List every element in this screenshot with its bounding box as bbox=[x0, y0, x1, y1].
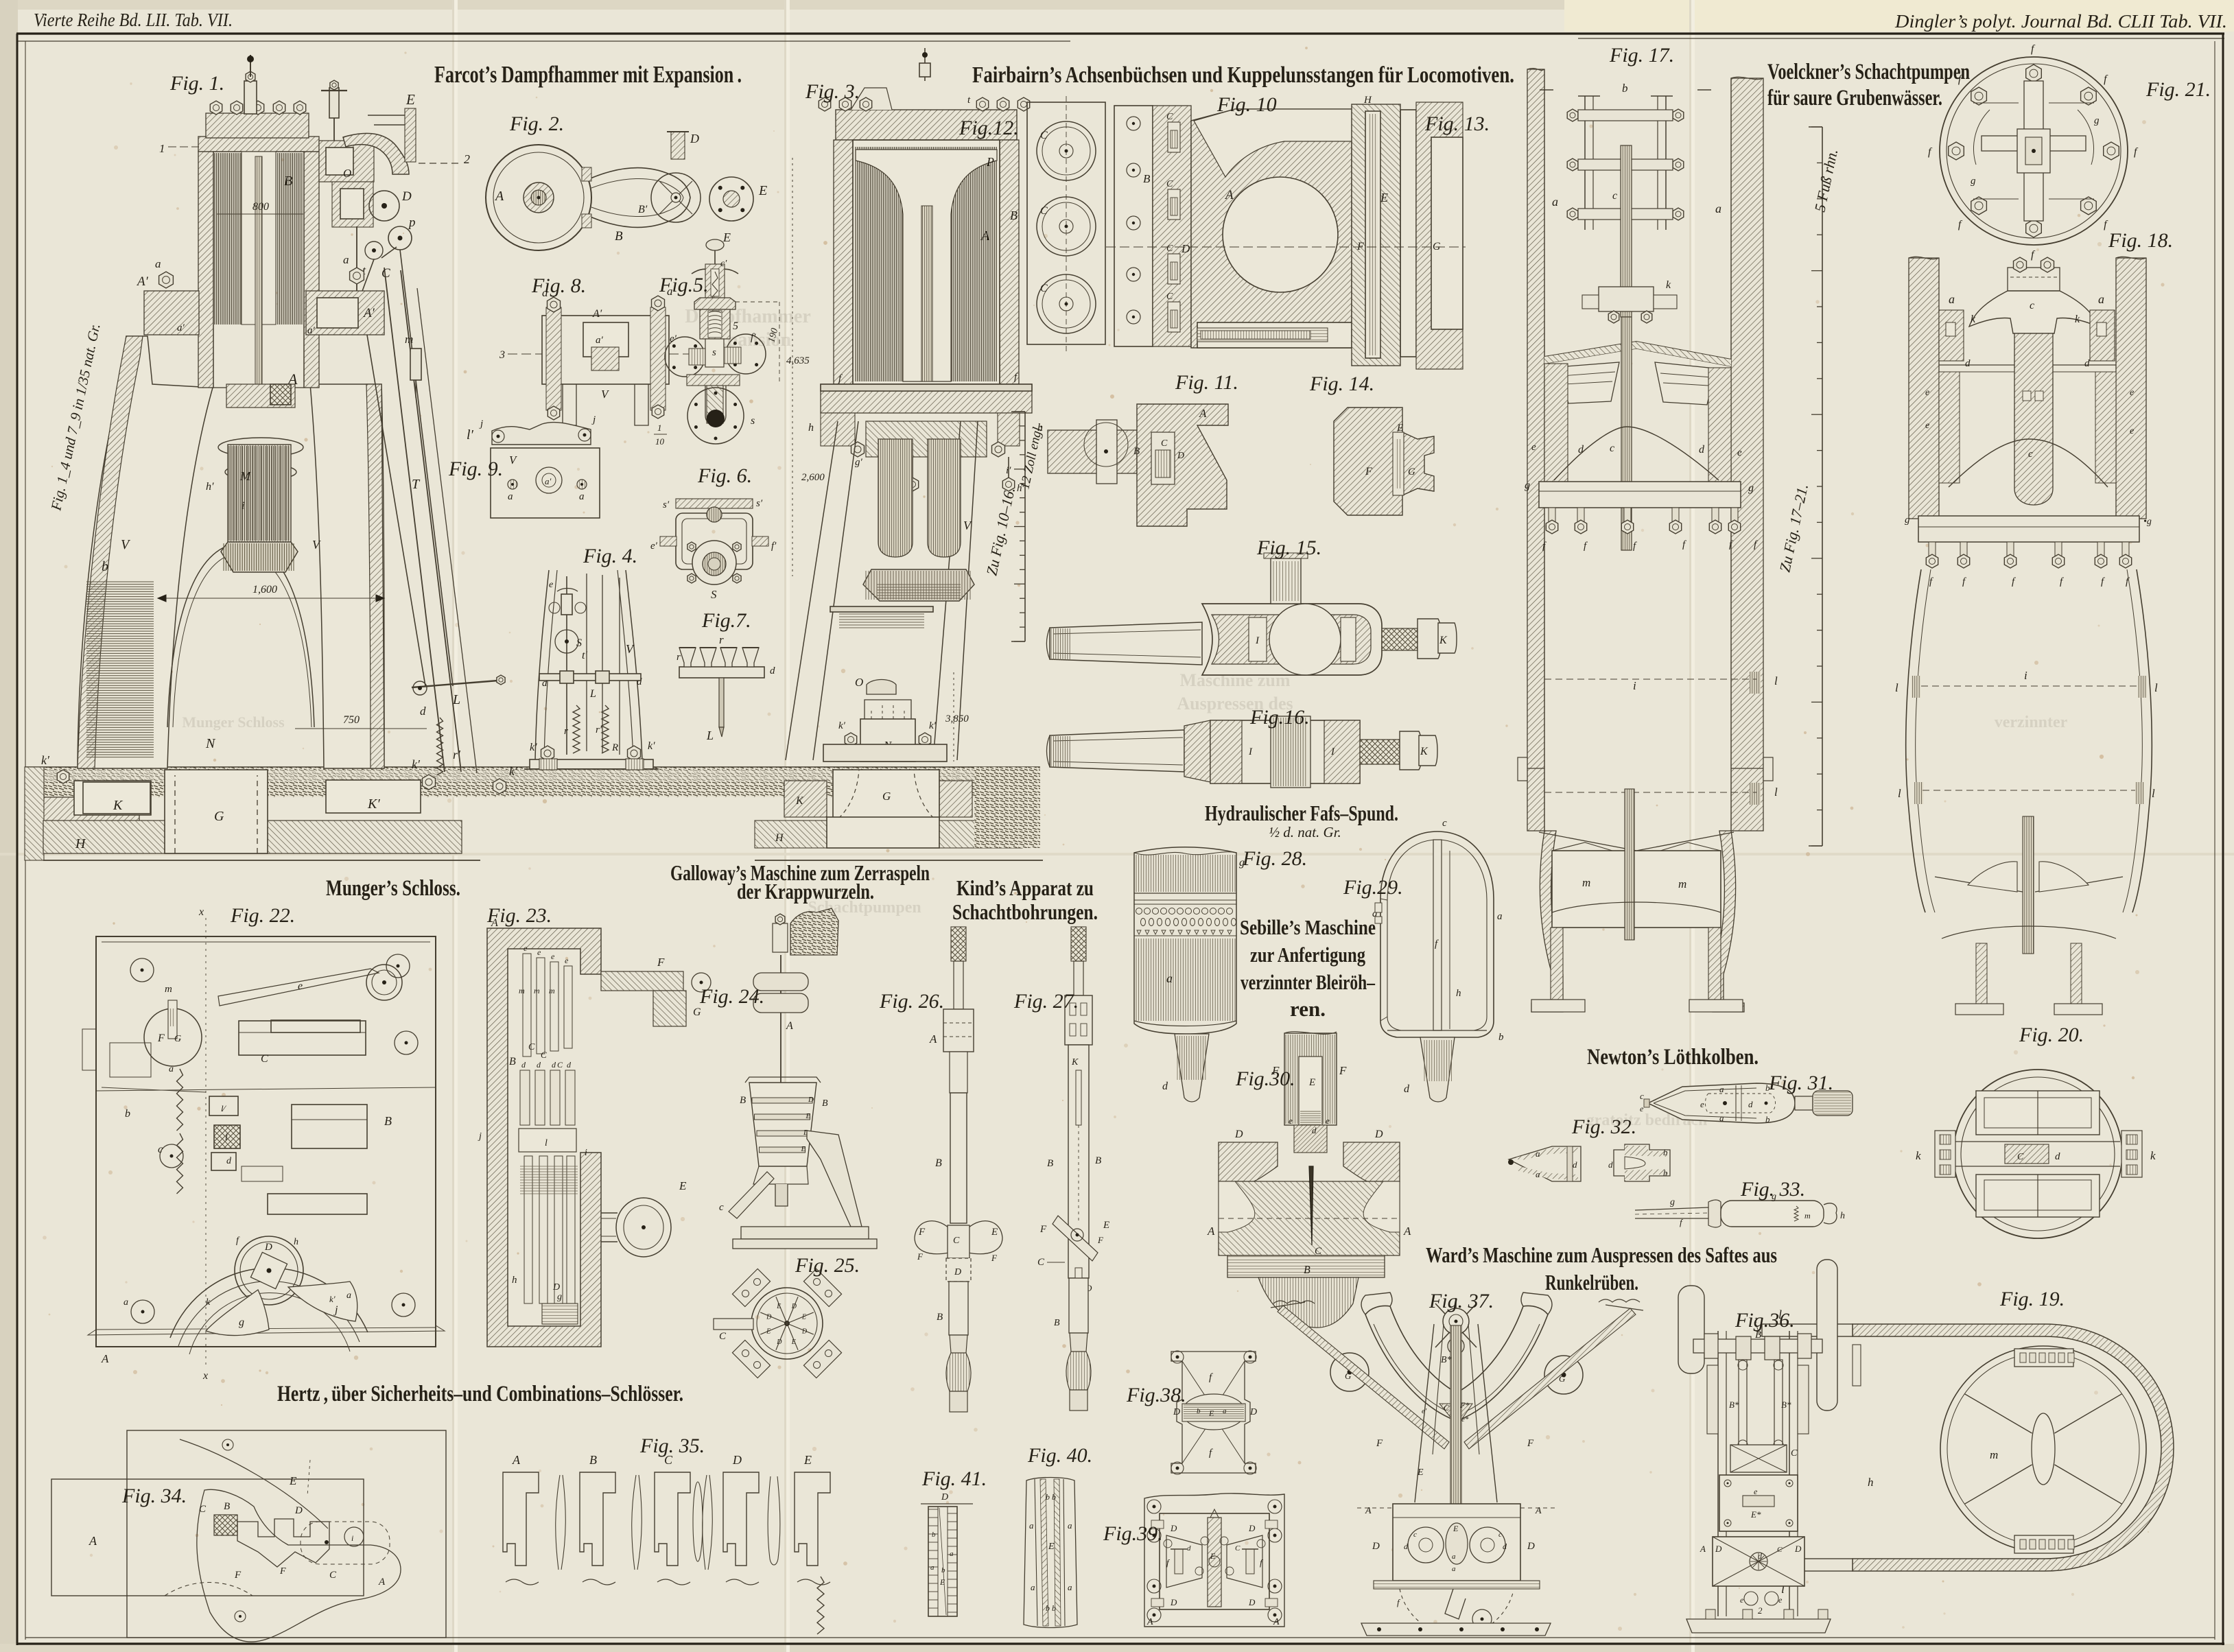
svg-text:für saure Grubenwässer.: für saure Grubenwässer. bbox=[1767, 86, 1942, 110]
svg-text:Fig. 34.: Fig. 34. bbox=[121, 1485, 187, 1507]
svg-text:C: C bbox=[199, 1504, 207, 1515]
svg-text:a: a bbox=[2098, 292, 2104, 306]
svg-text:d: d bbox=[1748, 1099, 1753, 1109]
svg-text:G: G bbox=[882, 790, 891, 803]
svg-text:k: k bbox=[1666, 279, 1671, 291]
svg-text:k′: k′ bbox=[412, 757, 421, 771]
svg-text:E: E bbox=[791, 1338, 796, 1346]
svg-text:s: s bbox=[712, 347, 716, 358]
svg-text:e: e bbox=[1925, 421, 1929, 431]
svg-text:a: a bbox=[950, 1550, 954, 1558]
svg-text:E: E bbox=[801, 1313, 806, 1321]
svg-text:800: 800 bbox=[252, 201, 269, 213]
svg-text:k′: k′ bbox=[648, 740, 655, 752]
svg-text:E: E bbox=[758, 183, 767, 198]
svg-text:h: h bbox=[1868, 1476, 1874, 1489]
svg-text:e: e bbox=[2130, 426, 2134, 436]
svg-text:1: 1 bbox=[159, 142, 165, 155]
svg-text:m: m bbox=[549, 986, 555, 995]
svg-text:B: B bbox=[740, 1095, 746, 1106]
svg-text:B: B bbox=[937, 1312, 943, 1323]
svg-text:E: E bbox=[803, 1453, 812, 1467]
svg-text:e′: e′ bbox=[670, 333, 677, 344]
svg-text:F: F bbox=[279, 1566, 286, 1577]
svg-text:d: d bbox=[2055, 1151, 2060, 1162]
svg-text:D: D bbox=[1170, 1523, 1177, 1533]
svg-text:e: e bbox=[1737, 447, 1742, 458]
svg-text:1: 1 bbox=[657, 423, 662, 433]
svg-text:I: I bbox=[1248, 746, 1253, 757]
svg-text:m: m bbox=[519, 986, 525, 995]
svg-text:s′: s′ bbox=[756, 498, 763, 509]
svg-text:2: 2 bbox=[1758, 1605, 1763, 1616]
svg-text:a′: a′ bbox=[307, 325, 316, 336]
svg-text:H: H bbox=[775, 832, 784, 844]
svg-text:P: P bbox=[986, 155, 994, 169]
svg-text:E: E bbox=[1208, 1408, 1214, 1418]
svg-text:B: B bbox=[284, 174, 292, 189]
svg-text:C: C bbox=[1166, 179, 1173, 189]
svg-text:C: C bbox=[528, 1042, 535, 1052]
svg-text:10: 10 bbox=[655, 436, 665, 447]
svg-text:B: B bbox=[1304, 1264, 1310, 1276]
svg-text:a: a bbox=[1068, 1520, 1072, 1531]
svg-text:Fig. 17.: Fig. 17. bbox=[1609, 44, 1674, 67]
svg-text:x: x bbox=[198, 906, 204, 918]
svg-text:E: E bbox=[1380, 191, 1388, 204]
svg-text:A: A bbox=[1207, 1225, 1215, 1238]
svg-text:B: B bbox=[935, 1157, 942, 1169]
svg-text:Fig. 13.: Fig. 13. bbox=[1424, 113, 1490, 135]
svg-text:O: O bbox=[343, 167, 351, 180]
svg-text:b: b bbox=[1765, 1114, 1770, 1124]
svg-text:B: B bbox=[1047, 1158, 1053, 1169]
svg-text:D: D bbox=[1374, 1129, 1383, 1140]
svg-text:d: d bbox=[1503, 1542, 1507, 1551]
svg-text:Fig. 2.: Fig. 2. bbox=[509, 113, 564, 135]
svg-text:Fig. 4.: Fig. 4. bbox=[583, 545, 637, 567]
svg-text:D: D bbox=[1249, 1407, 1257, 1417]
svg-text:e: e bbox=[1326, 1116, 1330, 1126]
svg-text:r′: r′ bbox=[596, 724, 602, 735]
svg-text:a: a bbox=[1452, 1553, 1456, 1561]
svg-text:Fig. 25.: Fig. 25. bbox=[795, 1254, 860, 1277]
svg-text:Fig. 27.: Fig. 27. bbox=[1013, 990, 1079, 1013]
svg-text:d: d bbox=[1404, 1083, 1410, 1095]
svg-text:Fig. 32.: Fig. 32. bbox=[1571, 1116, 1636, 1138]
svg-text:verzinnter: verzinnter bbox=[1995, 713, 2068, 731]
svg-text:K: K bbox=[1439, 635, 1448, 646]
svg-text:k: k bbox=[1916, 1149, 1921, 1162]
svg-text:D: D bbox=[1248, 1523, 1256, 1533]
svg-text:B′: B′ bbox=[638, 204, 648, 215]
svg-text:E: E bbox=[806, 1112, 811, 1120]
svg-text:c: c bbox=[1413, 1531, 1417, 1539]
svg-text:D: D bbox=[552, 1282, 560, 1293]
svg-text:E: E bbox=[939, 1577, 945, 1587]
svg-text:E: E bbox=[722, 231, 731, 244]
svg-text:Fig. 18.: Fig. 18. bbox=[2108, 229, 2173, 252]
svg-text:g′: g′ bbox=[855, 457, 863, 468]
svg-text:G: G bbox=[693, 1006, 701, 1018]
svg-text:m: m bbox=[1678, 877, 1686, 890]
svg-text:e: e bbox=[537, 947, 541, 957]
svg-text:E: E bbox=[1417, 1467, 1424, 1478]
svg-text:d: d bbox=[226, 1156, 232, 1166]
svg-text:d: d bbox=[1573, 1159, 1577, 1170]
svg-text:a: a bbox=[1949, 292, 1955, 306]
svg-text:Fig. 21.: Fig. 21. bbox=[2145, 78, 2211, 101]
svg-text:E*: E* bbox=[1750, 1509, 1761, 1520]
svg-text:A′: A′ bbox=[362, 306, 375, 320]
svg-text:D: D bbox=[732, 1453, 742, 1467]
svg-text:H: H bbox=[1363, 95, 1372, 106]
svg-text:a: a bbox=[346, 1290, 351, 1301]
svg-text:Fig. 3.: Fig. 3. bbox=[805, 80, 860, 103]
svg-text:e: e bbox=[1640, 1104, 1644, 1113]
svg-text:m: m bbox=[1804, 1211, 1811, 1220]
svg-text:Fig. 41.: Fig. 41. bbox=[921, 1467, 987, 1490]
svg-text:a′: a′ bbox=[177, 322, 185, 333]
svg-text:k: k bbox=[1971, 314, 1976, 325]
svg-text:Fig. 23.: Fig. 23. bbox=[486, 904, 552, 927]
svg-text:a′: a′ bbox=[596, 335, 604, 346]
svg-text:k′: k′ bbox=[41, 753, 50, 767]
svg-text:k: k bbox=[206, 1297, 211, 1308]
svg-text:d: d bbox=[1404, 1542, 1409, 1551]
svg-text:p: p bbox=[408, 215, 416, 230]
svg-text:a: a bbox=[124, 1297, 128, 1308]
svg-text:750: 750 bbox=[343, 714, 360, 726]
svg-text:F: F bbox=[918, 1227, 926, 1238]
svg-text:c: c bbox=[719, 1202, 724, 1213]
svg-text:k: k bbox=[2150, 1149, 2156, 1162]
svg-text:s: s bbox=[751, 415, 755, 427]
svg-text:d: d bbox=[1187, 1544, 1191, 1553]
svg-text:O: O bbox=[855, 676, 863, 689]
svg-text:Fig. 6.: Fig. 6. bbox=[697, 464, 752, 487]
svg-text:g: g bbox=[2094, 115, 2100, 126]
svg-text:F: F bbox=[1097, 1235, 1104, 1245]
svg-text:4,635: 4,635 bbox=[786, 355, 810, 366]
svg-text:e: e bbox=[1778, 1595, 1783, 1605]
svg-text:Voelckner’s Schachtpumpen: Voelckner’s Schachtpumpen bbox=[1767, 60, 1970, 84]
svg-text:T: T bbox=[412, 477, 421, 492]
svg-text:l: l bbox=[1895, 681, 1898, 694]
svg-text:C: C bbox=[1791, 1448, 1798, 1459]
svg-text:a: a bbox=[1536, 1169, 1540, 1179]
svg-text:f′: f′ bbox=[771, 541, 777, 552]
svg-text:a: a bbox=[508, 491, 513, 502]
svg-text:B: B bbox=[1054, 1318, 1060, 1328]
svg-text:Fig. 33.: Fig. 33. bbox=[1740, 1178, 1805, 1201]
svg-text:a: a bbox=[930, 1563, 934, 1572]
svg-text:D: D bbox=[791, 1303, 797, 1310]
svg-text:f′: f′ bbox=[751, 332, 756, 343]
svg-text:3,850: 3,850 bbox=[945, 713, 969, 724]
svg-text:e′: e′ bbox=[650, 541, 658, 552]
svg-text:L: L bbox=[589, 688, 596, 700]
svg-text:F: F bbox=[991, 1253, 998, 1263]
svg-text:r: r bbox=[564, 726, 568, 737]
svg-text:C: C bbox=[1777, 1546, 1783, 1554]
svg-text:A: A bbox=[512, 1453, 521, 1467]
svg-text:Sebille’s Maschine: Sebille’s Maschine bbox=[1240, 915, 1376, 939]
svg-text:Fig. 24.: Fig. 24. bbox=[699, 985, 764, 1008]
svg-text:c: c bbox=[1442, 818, 1447, 829]
svg-text:l: l bbox=[1774, 674, 1778, 687]
svg-text:b: b bbox=[1663, 1168, 1668, 1178]
svg-text:F: F bbox=[1365, 466, 1372, 477]
svg-text:g: g bbox=[239, 1317, 244, 1328]
svg-text:Munger Schloss: Munger Schloss bbox=[182, 713, 285, 731]
svg-text:Fig. 35.: Fig. 35. bbox=[639, 1435, 705, 1457]
svg-text:ren.: ren. bbox=[1290, 997, 1326, 1021]
svg-text:Fig. 14.: Fig. 14. bbox=[1309, 373, 1374, 395]
svg-text:Fig. 15.: Fig. 15. bbox=[1256, 536, 1321, 559]
svg-text:F: F bbox=[157, 1032, 165, 1044]
svg-text:D: D bbox=[264, 1242, 272, 1253]
svg-text:L: L bbox=[706, 729, 714, 742]
svg-text:D: D bbox=[1173, 1407, 1180, 1417]
svg-text:a: a bbox=[1029, 1520, 1034, 1531]
svg-text:e: e bbox=[524, 943, 528, 953]
svg-text:k: k bbox=[2075, 314, 2080, 325]
svg-text:a: a bbox=[1166, 971, 1173, 985]
svg-text:e: e bbox=[1925, 388, 1929, 398]
svg-text:r: r bbox=[719, 633, 724, 646]
svg-text:Fig. 8.: Fig. 8. bbox=[531, 274, 586, 297]
svg-text:D: D bbox=[1181, 242, 1190, 255]
svg-text:k′: k′ bbox=[530, 742, 537, 753]
svg-text:L: L bbox=[452, 692, 460, 707]
svg-text:A′: A′ bbox=[136, 274, 149, 289]
svg-text:F: F bbox=[1376, 1438, 1383, 1449]
svg-text:a: a bbox=[169, 1064, 174, 1074]
svg-text:g: g bbox=[557, 1292, 562, 1302]
svg-text:A: A bbox=[1535, 1506, 1542, 1516]
svg-text:A′: A′ bbox=[592, 308, 602, 320]
svg-text:Fig.16.: Fig.16. bbox=[1249, 706, 1310, 729]
svg-text:N: N bbox=[205, 736, 216, 751]
svg-text:e: e bbox=[1531, 442, 1536, 453]
svg-text:d: d bbox=[770, 665, 775, 676]
svg-text:d: d bbox=[2084, 358, 2090, 369]
svg-text:F: F bbox=[657, 956, 665, 969]
svg-text:C: C bbox=[953, 1236, 960, 1246]
svg-text:a: a bbox=[1715, 202, 1721, 215]
svg-text:C: C bbox=[1235, 1544, 1241, 1553]
svg-text:a: a bbox=[1497, 911, 1503, 922]
svg-text:A: A bbox=[101, 1352, 109, 1365]
svg-text:g: g bbox=[1971, 176, 1976, 187]
svg-text:A: A bbox=[786, 1020, 793, 1032]
svg-text:g: g bbox=[1670, 1197, 1675, 1207]
svg-text:C: C bbox=[1037, 1257, 1045, 1268]
svg-text:D: D bbox=[1527, 1541, 1535, 1552]
svg-text:c: c bbox=[158, 1144, 163, 1155]
svg-text:A: A bbox=[980, 228, 990, 244]
svg-text:B: B bbox=[1133, 446, 1140, 457]
svg-text:D: D bbox=[941, 1492, 948, 1502]
svg-text:verzinnter Bleiröh–: verzinnter Bleiröh– bbox=[1241, 970, 1375, 994]
svg-text:d: d bbox=[567, 1060, 572, 1070]
svg-text:Fig.38.: Fig.38. bbox=[1126, 1384, 1186, 1406]
svg-text:S: S bbox=[711, 588, 717, 601]
svg-text:e′: e′ bbox=[1422, 1407, 1427, 1415]
svg-text:D: D bbox=[1234, 1129, 1243, 1140]
svg-text:A: A bbox=[1147, 1617, 1153, 1627]
svg-text:l′: l′ bbox=[467, 427, 474, 442]
svg-text:E: E bbox=[1453, 1524, 1459, 1533]
svg-text:c: c bbox=[1610, 442, 1614, 454]
svg-text:E: E bbox=[776, 1303, 781, 1310]
svg-text:d: d bbox=[1965, 358, 1971, 369]
svg-text:Runkelrüben.: Runkelrüben. bbox=[1545, 1270, 1638, 1295]
svg-text:A: A bbox=[1199, 407, 1207, 420]
svg-text:h: h bbox=[512, 1275, 517, 1286]
svg-text:B: B bbox=[589, 1453, 597, 1467]
svg-text:D: D bbox=[294, 1505, 303, 1516]
svg-text:a: a bbox=[579, 491, 585, 502]
svg-text:K: K bbox=[113, 798, 124, 813]
svg-text:g: g bbox=[1748, 482, 1754, 494]
svg-text:Fig.7.: Fig.7. bbox=[701, 609, 751, 632]
svg-text:h′: h′ bbox=[206, 481, 214, 493]
svg-text:D: D bbox=[766, 1313, 772, 1321]
svg-text:der Krappwurzeln.: der Krappwurzeln. bbox=[737, 879, 874, 904]
svg-text:A: A bbox=[1273, 1617, 1280, 1627]
svg-text:E: E bbox=[766, 1328, 771, 1336]
svg-text:a: a bbox=[1552, 195, 1558, 209]
svg-text:Fig.30.: Fig.30. bbox=[1235, 1067, 1295, 1090]
svg-text:k′: k′ bbox=[509, 764, 518, 778]
svg-text:D: D bbox=[401, 189, 412, 204]
svg-text:c′: c′ bbox=[720, 259, 727, 269]
svg-text:g: g bbox=[1525, 480, 1530, 491]
svg-text:C: C bbox=[1444, 1403, 1450, 1413]
svg-text:b: b bbox=[125, 1108, 130, 1120]
svg-text:Fig. 40.: Fig. 40. bbox=[1027, 1444, 1092, 1467]
svg-text:m: m bbox=[405, 333, 413, 346]
svg-text:e: e bbox=[1754, 1487, 1758, 1496]
svg-text:E: E bbox=[1396, 423, 1403, 434]
svg-text:r: r bbox=[677, 652, 681, 663]
svg-text:Fig. 26.: Fig. 26. bbox=[879, 990, 944, 1013]
svg-text:E: E bbox=[1103, 1220, 1109, 1231]
svg-text:C: C bbox=[329, 1570, 337, 1581]
svg-text:Schachtbohrungen.: Schachtbohrungen. bbox=[952, 899, 1098, 924]
svg-text:D: D bbox=[808, 1096, 814, 1104]
svg-text:E: E bbox=[1210, 1551, 1216, 1561]
svg-text:b: b bbox=[102, 559, 108, 574]
svg-text:D: D bbox=[954, 1267, 961, 1277]
svg-text:i: i bbox=[2024, 669, 2027, 682]
svg-text:Hertz , über Sicherheits–und C: Hertz , über Sicherheits–und Combination… bbox=[277, 1382, 683, 1406]
svg-text:j: j bbox=[333, 1304, 338, 1316]
svg-text:d: d bbox=[1699, 444, 1705, 456]
svg-text:K: K bbox=[1071, 1057, 1079, 1067]
svg-text:a: a bbox=[155, 257, 161, 270]
svg-text:g: g bbox=[1905, 515, 1910, 526]
svg-text:c: c bbox=[2030, 300, 2034, 311]
svg-text:Fairbairn’s Achsenbüchsen und: Fairbairn’s Achsenbüchsen und Kuppelunss… bbox=[972, 62, 1514, 88]
svg-text:a: a bbox=[1719, 1084, 1724, 1094]
svg-text:B: B bbox=[224, 1501, 230, 1512]
svg-text:A: A bbox=[494, 189, 504, 204]
svg-text:Fig. 1.: Fig. 1. bbox=[169, 72, 224, 95]
svg-text:b b: b b bbox=[1046, 1603, 1056, 1613]
svg-text:D: D bbox=[1715, 1544, 1722, 1554]
svg-text:K: K bbox=[1420, 746, 1428, 757]
svg-text:b: b bbox=[1622, 82, 1628, 95]
svg-text:i: i bbox=[1633, 679, 1636, 692]
svg-text:e: e bbox=[549, 580, 553, 590]
svg-text:E: E bbox=[801, 1145, 806, 1153]
svg-text:m: m bbox=[1582, 876, 1590, 889]
svg-text:d: d bbox=[420, 705, 426, 718]
svg-text:C: C bbox=[1040, 130, 1048, 141]
svg-text:•g: •g bbox=[2143, 517, 2152, 527]
svg-text:e: e bbox=[551, 952, 555, 961]
svg-text:C: C bbox=[381, 266, 390, 281]
svg-text:B: B bbox=[384, 1114, 392, 1128]
svg-text:B: B bbox=[1095, 1155, 1101, 1166]
svg-text:Fig. 19.: Fig. 19. bbox=[1999, 1288, 2065, 1310]
svg-text:e: e bbox=[1289, 1116, 1293, 1126]
svg-text:C: C bbox=[261, 1053, 268, 1065]
svg-text:F: F bbox=[917, 1251, 924, 1262]
svg-text:F*: F* bbox=[1459, 1400, 1469, 1410]
svg-text:d: d bbox=[1162, 1081, 1168, 1092]
svg-text:B*: B* bbox=[1441, 1355, 1452, 1365]
svg-text:R: R bbox=[611, 742, 618, 753]
svg-text:Dingler’s polyt. Journal Bd.: Dingler’s polyt. Journal Bd. CLII Tab. V… bbox=[1894, 11, 2227, 32]
svg-text:C: C bbox=[1166, 292, 1173, 302]
svg-text:b b: b b bbox=[1046, 1492, 1056, 1502]
svg-text:F: F bbox=[1527, 1438, 1534, 1449]
svg-text:Farcot’s Dampfhammer mit Expan: Farcot’s Dampfhammer mit Expansion . bbox=[434, 61, 742, 88]
svg-text:2,600: 2,600 bbox=[801, 472, 825, 483]
svg-text:G: G bbox=[1408, 467, 1415, 477]
svg-text:c: c bbox=[1612, 190, 1617, 202]
svg-text:D: D bbox=[690, 132, 699, 145]
svg-text:A: A bbox=[1365, 1506, 1372, 1516]
svg-text:E: E bbox=[405, 91, 415, 108]
svg-text:h: h bbox=[294, 1237, 298, 1247]
svg-text:E: E bbox=[679, 1179, 687, 1192]
svg-text:Fig.5.: Fig.5. bbox=[659, 274, 709, 296]
svg-text:d: d bbox=[1758, 1551, 1763, 1561]
svg-text:F: F bbox=[234, 1570, 242, 1581]
svg-text:C: C bbox=[1166, 112, 1173, 122]
svg-text:Fig.39.: Fig.39. bbox=[1103, 1522, 1163, 1545]
svg-text:c: c bbox=[2028, 449, 2033, 460]
svg-text:s′: s′ bbox=[663, 499, 670, 510]
svg-text:H: H bbox=[75, 836, 86, 851]
svg-text:Fig. 9.: Fig. 9. bbox=[448, 458, 503, 480]
svg-text:a: a bbox=[1223, 1407, 1227, 1415]
svg-text:K′: K′ bbox=[367, 796, 380, 812]
svg-text:Kind’s Apparat zu: Kind’s Apparat zu bbox=[956, 875, 1094, 900]
svg-text:B: B bbox=[1010, 209, 1018, 222]
svg-text:B*: B* bbox=[1729, 1400, 1739, 1410]
svg-text:d: d bbox=[521, 1060, 526, 1070]
svg-text:G: G bbox=[214, 809, 224, 824]
svg-text:A: A bbox=[89, 1534, 97, 1548]
svg-text:Ward’s Maschine zum Auspressen: Ward’s Maschine zum Auspressen des Safte… bbox=[1426, 1242, 1777, 1267]
svg-text:Vierte Reihe Bd. LII. Tab. VII: Vierte Reihe Bd. LII. Tab. VII. bbox=[34, 10, 233, 30]
